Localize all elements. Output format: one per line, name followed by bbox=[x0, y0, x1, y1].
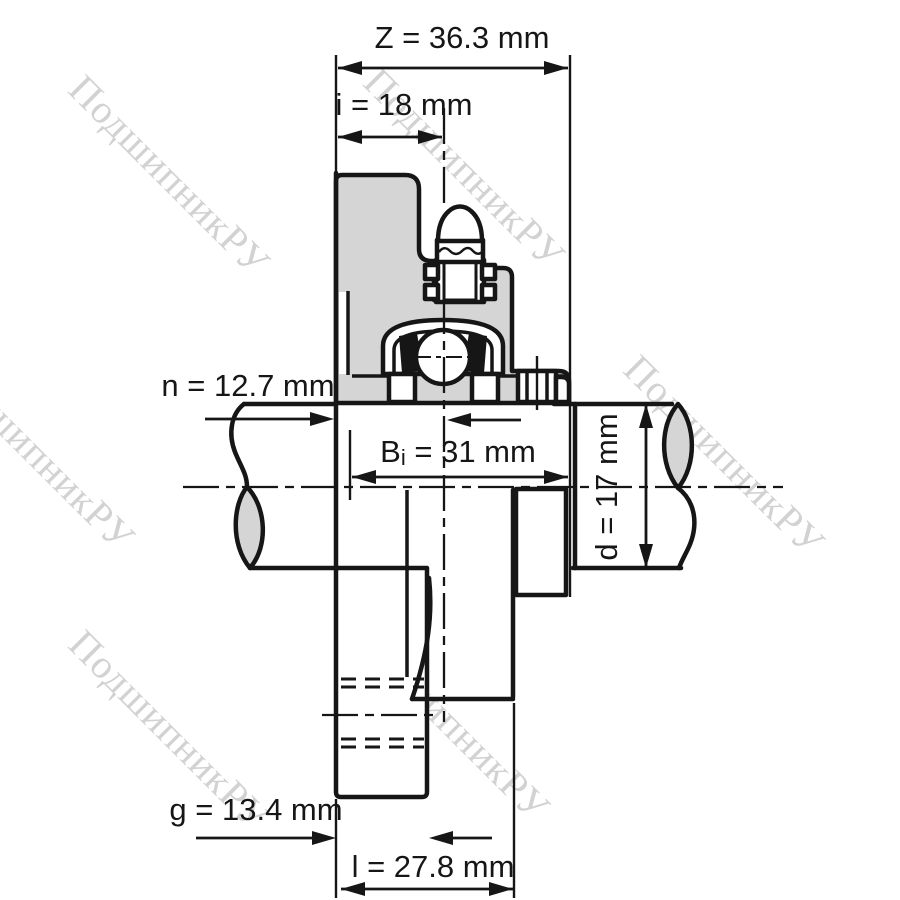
fitting-tab bbox=[425, 265, 438, 279]
arrowhead-right bbox=[310, 412, 334, 426]
dim-label-g: g = 13.4 mm bbox=[169, 792, 342, 827]
inner-ring-left bbox=[389, 374, 415, 402]
arrowhead-left bbox=[338, 130, 362, 144]
shaft-break-left-curve bbox=[231, 404, 247, 487]
dimension-g: g = 13.4 mm bbox=[169, 792, 492, 845]
arrowhead-right bbox=[489, 882, 513, 896]
dim-label-n: n = 12.7 mm bbox=[161, 368, 334, 403]
watermark-text: ПодшипникРУ bbox=[0, 341, 144, 560]
arrowhead-right bbox=[312, 831, 336, 845]
grease-fitting bbox=[425, 207, 495, 303]
dim-label-d: d = 17 mm bbox=[589, 413, 624, 560]
fitting-dome bbox=[438, 207, 482, 242]
dim-label-Bi: Bi = 31 mm bbox=[380, 434, 536, 470]
arrowhead-left bbox=[352, 470, 376, 484]
watermark-text: ПодшипникРУ bbox=[615, 346, 834, 565]
arrowhead-down bbox=[639, 544, 653, 568]
watermark-text: ПодшипникРУ bbox=[60, 66, 279, 285]
shaft-break-right-curve bbox=[678, 488, 694, 568]
shaft-break-left-lens bbox=[236, 487, 263, 568]
dim-label-Z: Z = 36.3 mm bbox=[375, 20, 550, 55]
arrowhead-left bbox=[341, 882, 365, 896]
flange-extension-outline bbox=[336, 568, 427, 797]
arrowhead-right bbox=[544, 470, 568, 484]
arrowhead-left bbox=[338, 61, 362, 75]
fitting-tab bbox=[425, 285, 438, 299]
arrowhead-right bbox=[544, 61, 568, 75]
inner-ring-right bbox=[472, 374, 498, 402]
fitting-tab bbox=[482, 265, 495, 279]
bearing-dimension-diagram: ПодшипникРУ ПодшипникРУ ПодшипникРУ Подш… bbox=[0, 0, 900, 900]
fitting-tab bbox=[482, 285, 495, 299]
shaft-break-right-lens bbox=[664, 404, 692, 488]
dim-label-l: l = 27.8 mm bbox=[352, 849, 515, 884]
dim-label-i: i = 18 mm bbox=[336, 87, 473, 122]
bearing-drawing-canvas: ПодшипникРУ ПодшипникРУ ПодшипникРУ Подш… bbox=[0, 0, 900, 900]
back-face-step bbox=[556, 377, 569, 402]
arrowhead-left bbox=[447, 413, 471, 427]
fitting-hex-base bbox=[437, 240, 483, 262]
arrowhead-left bbox=[429, 831, 453, 845]
inner-ring-lower-end bbox=[516, 489, 566, 595]
